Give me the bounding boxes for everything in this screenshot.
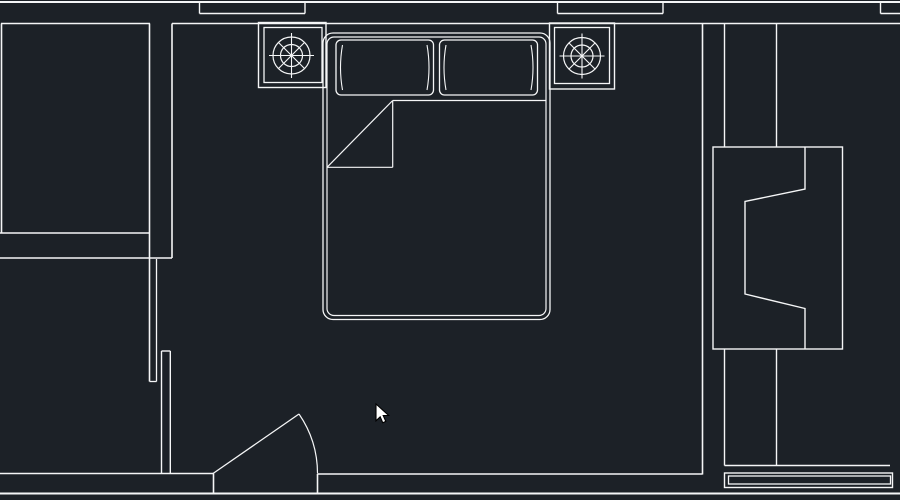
right-threshold-inner (729, 476, 891, 484)
pillow-right-crease-b (531, 45, 533, 90)
mouse-cursor (376, 404, 389, 423)
door-leaf (213, 414, 299, 474)
door-swing-arc (299, 414, 318, 474)
armchair-back (745, 147, 805, 349)
cad-viewport[interactable] (0, 0, 900, 500)
right-threshold-outer (725, 473, 893, 488)
blanket-fold-diagonal (327, 101, 393, 168)
pillow-right-crease-a (444, 45, 446, 90)
bed-inner (327, 37, 546, 316)
floor-plan-svg (0, 0, 900, 500)
pillow-right (440, 40, 538, 95)
pillow-left-crease-a (341, 45, 343, 90)
bed-outer (323, 33, 550, 320)
armchair-outline (713, 147, 843, 349)
pillow-left-crease-b (427, 45, 429, 90)
pillow-left (336, 40, 434, 95)
